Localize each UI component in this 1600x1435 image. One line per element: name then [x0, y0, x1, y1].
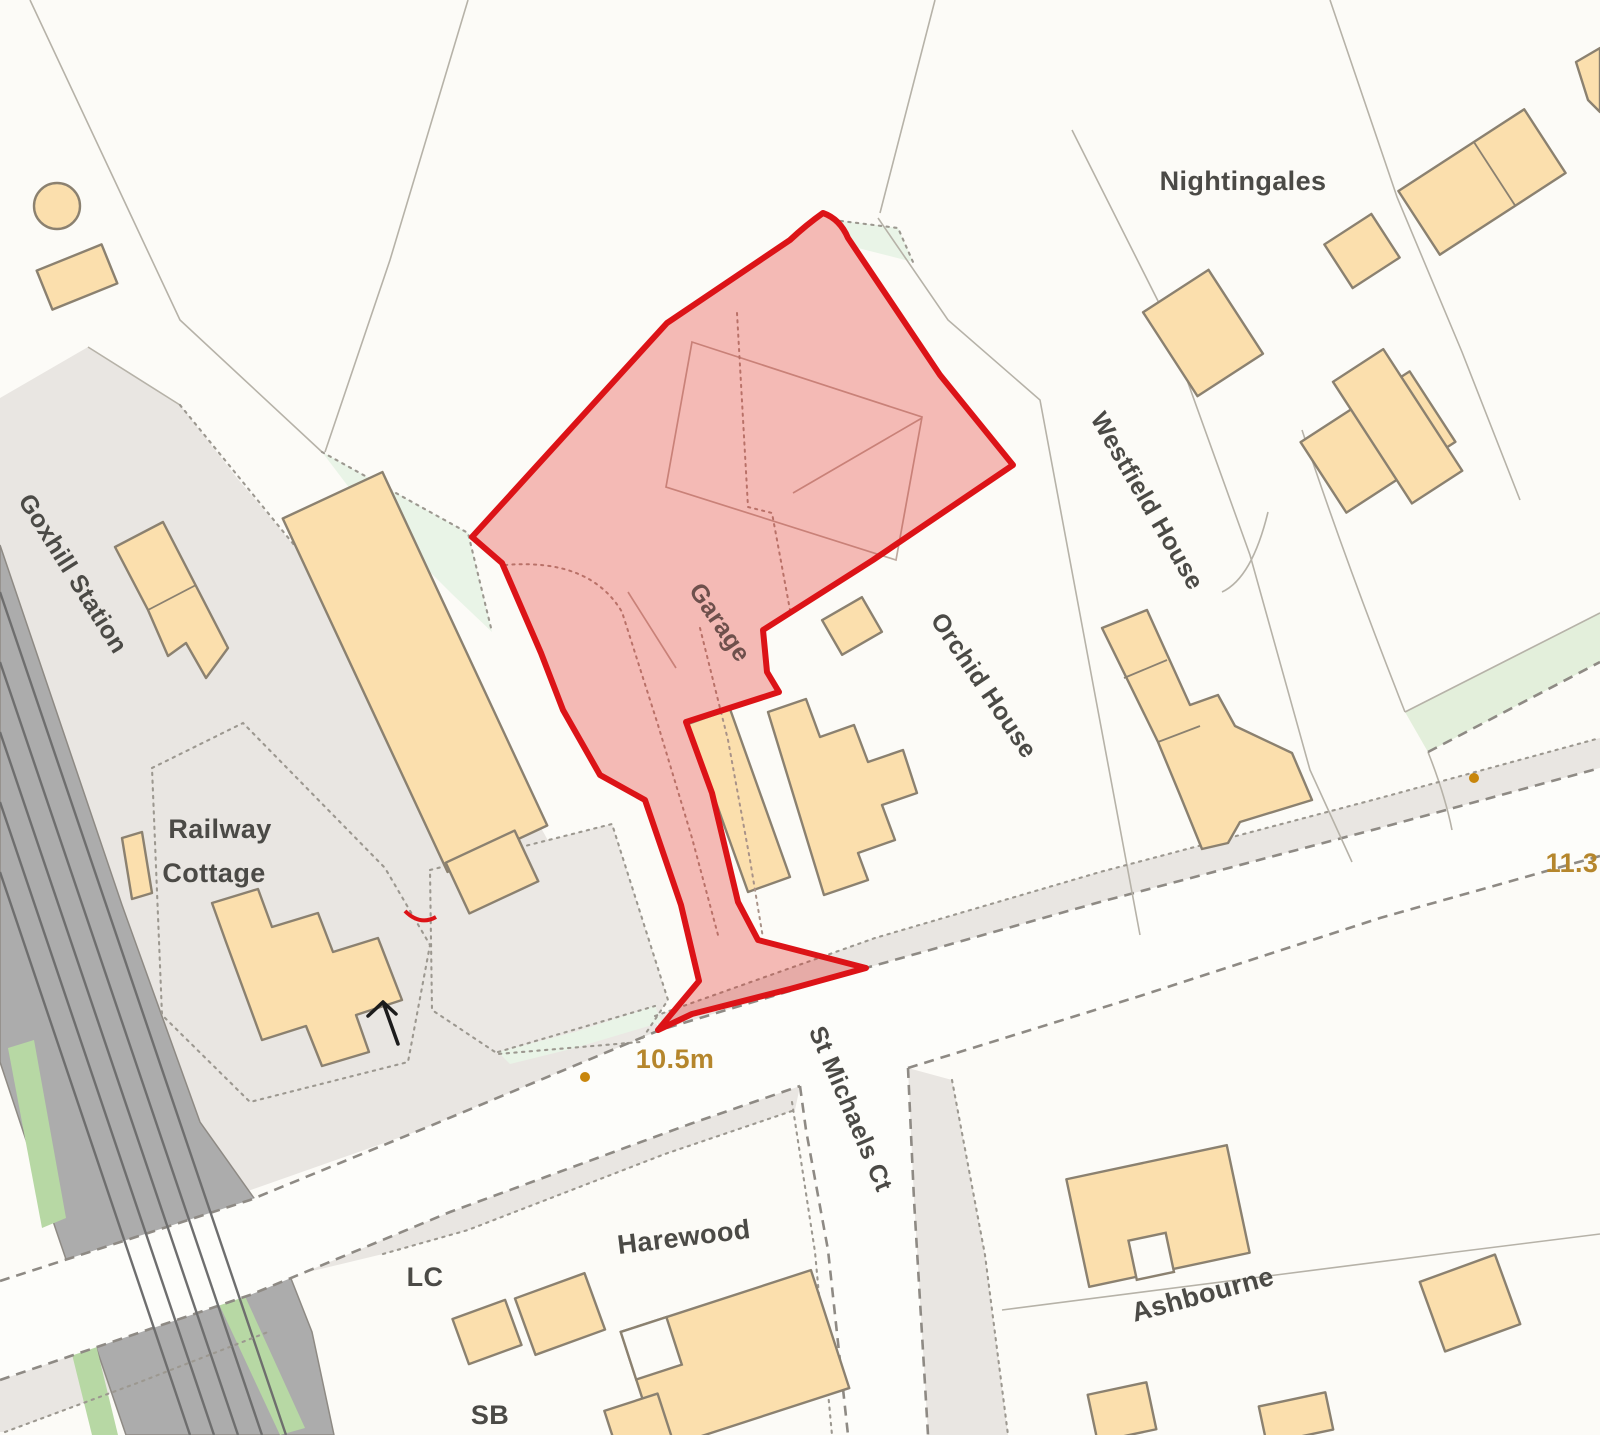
building-harewood-out-1	[452, 1300, 521, 1364]
label-lc: LC	[407, 1262, 444, 1292]
building-orchid-house	[768, 699, 917, 895]
building-round-tank	[34, 183, 80, 229]
site-plan-svg: Nightingales Westfield House Orchid Hous…	[0, 0, 1600, 1435]
building-small-nw	[37, 244, 118, 309]
label-nightingales: Nightingales	[1160, 166, 1327, 196]
map-canvas[interactable]: Nightingales Westfield House Orchid Hous…	[0, 0, 1600, 1435]
spot-height-dot	[580, 1072, 590, 1082]
building-bottom-3	[1420, 1255, 1520, 1352]
building-nightingales	[1143, 270, 1263, 396]
label-orchid-house: Orchid House	[925, 608, 1043, 764]
building-duplex-ne	[1398, 109, 1565, 254]
label-spot-height-road: 10.5m	[636, 1044, 715, 1074]
building-small-ne	[1324, 214, 1399, 288]
green-band-east	[1405, 612, 1600, 752]
building-bottom-1	[1088, 1382, 1157, 1435]
building-edge-ne	[1576, 48, 1600, 112]
label-harewood: Harewood	[616, 1214, 752, 1260]
building-bottom-2	[1259, 1392, 1333, 1435]
building-westfield-house	[1102, 610, 1312, 849]
building-orchid-outbuilding	[822, 597, 882, 655]
label-westfield-house: Westfield House	[1085, 407, 1209, 594]
label-railway: Railway	[168, 814, 271, 844]
label-cottage: Cottage	[162, 858, 265, 888]
spot-height-dot	[1469, 773, 1479, 783]
label-sb: SB	[471, 1400, 509, 1430]
building-harewood-out-2	[515, 1273, 605, 1355]
building-east-house	[1283, 344, 1471, 536]
label-spot-height-east: 11.3	[1546, 848, 1599, 878]
building-harewood	[583, 1270, 851, 1435]
building-ashbourne	[1066, 1145, 1250, 1290]
